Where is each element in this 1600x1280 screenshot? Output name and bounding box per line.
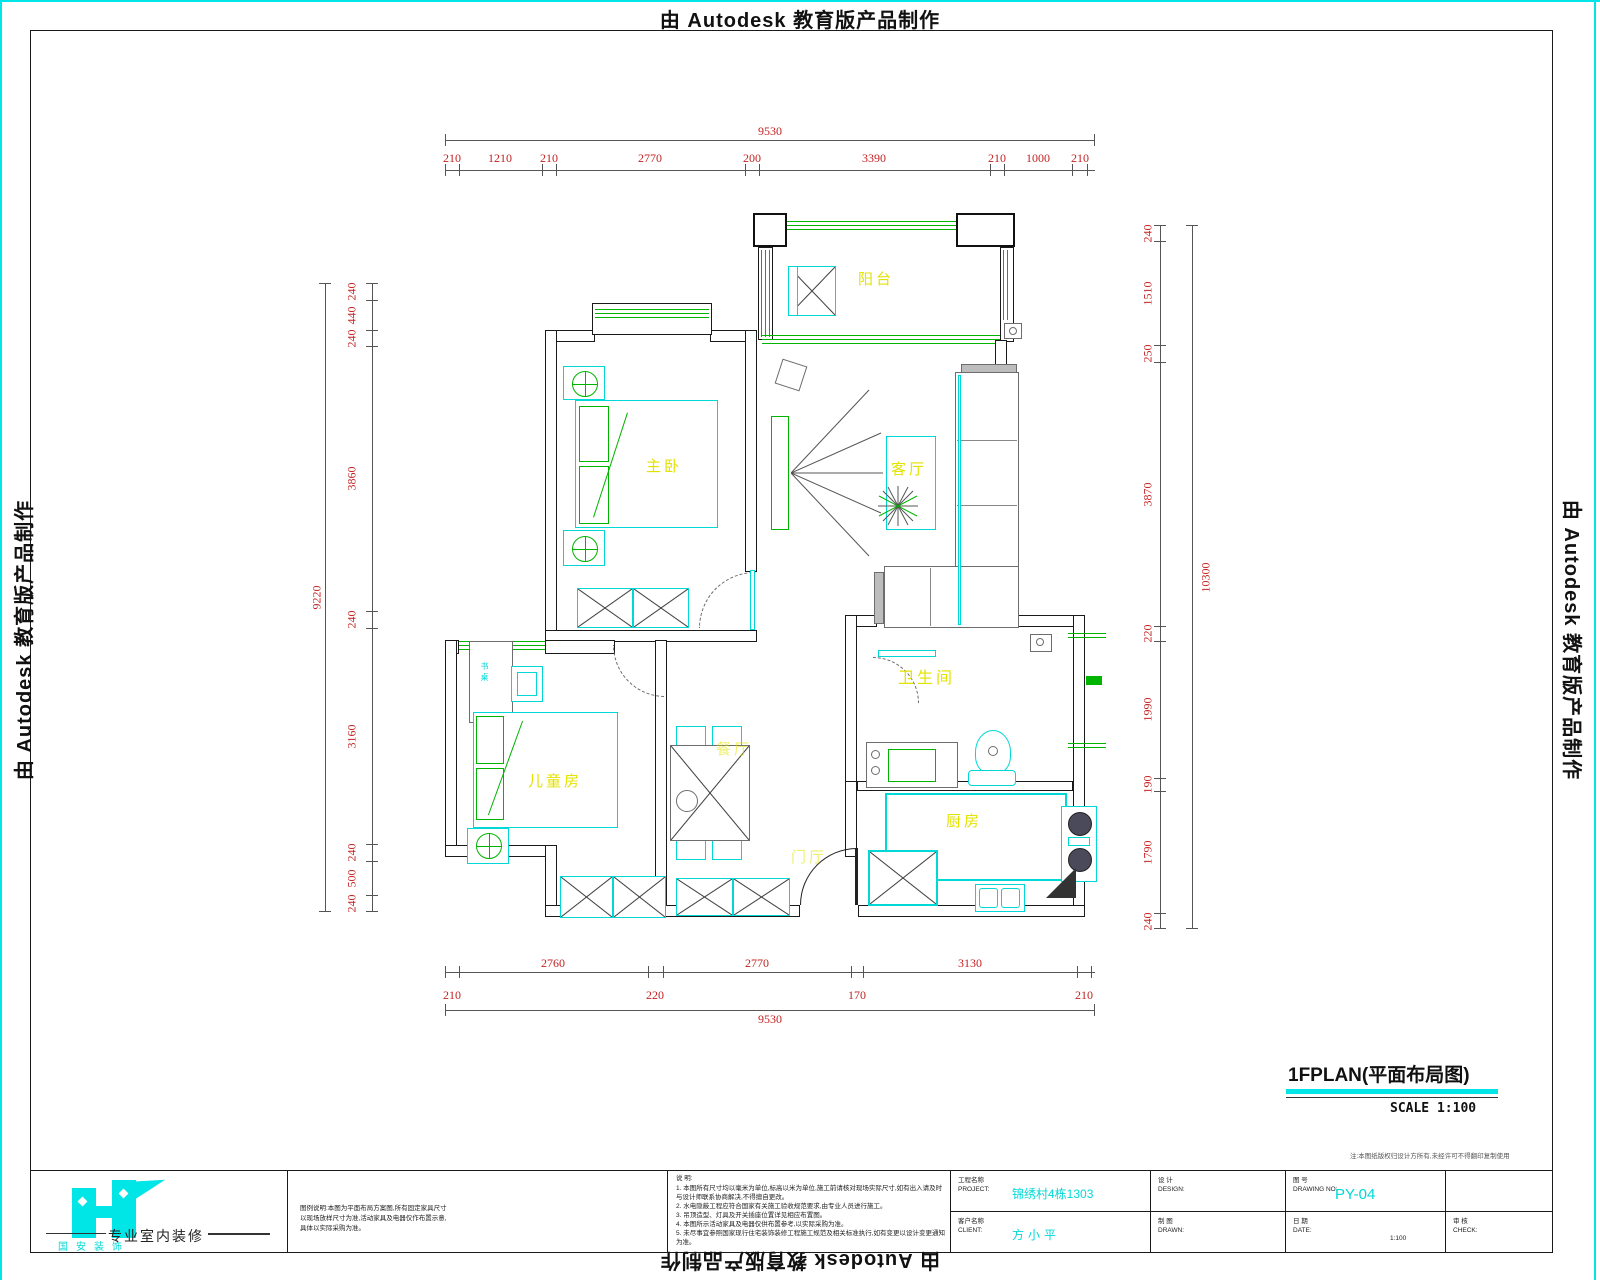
dim-value: 3390 <box>854 151 894 166</box>
legend-line: 具体以实际采购为准。 <box>300 1224 365 1233</box>
dim-value: 9220 <box>310 576 325 620</box>
date-value: 1:100 <box>1390 1234 1406 1243</box>
dim-tick <box>1154 913 1166 914</box>
dim-value: 210 <box>432 988 472 1003</box>
washing-machine-panel <box>788 266 798 316</box>
cyan-edge-top <box>0 0 1600 2</box>
dim-tick <box>1154 225 1166 226</box>
tv-cabinet <box>771 416 789 530</box>
room-label-balcony: 阳台 <box>858 268 894 289</box>
sofa-seam <box>957 440 1017 441</box>
cyan-edge-left <box>0 0 2 1280</box>
room-label-kitchen: 厨房 <box>946 810 982 831</box>
wall <box>845 615 857 790</box>
drawingno-value: PY-04 <box>1335 1186 1375 1203</box>
field-label: 日 期 <box>1293 1217 1308 1226</box>
field-label: 制 图 <box>1158 1217 1173 1226</box>
dim-tick <box>319 911 331 912</box>
toilet-tank <box>968 770 1016 786</box>
dim-value: 210 <box>1064 988 1104 1003</box>
dim-tick <box>1154 626 1166 627</box>
sofa-horizontal <box>884 566 1019 628</box>
logo-rule <box>46 1233 106 1234</box>
door-leaf-master <box>750 570 755 630</box>
sofa-seam <box>957 505 1017 506</box>
dim-value: 3870 <box>1141 475 1156 515</box>
dim-value: 2760 <box>533 956 573 971</box>
dim-tick <box>366 844 378 845</box>
dim-tick <box>1094 1004 1095 1016</box>
dim-tick <box>1186 928 1198 929</box>
field-label: DESIGN: <box>1158 1185 1185 1194</box>
frame-right <box>1552 30 1553 1253</box>
titleblock-row-line <box>950 1211 1552 1212</box>
field-label: 审 核 <box>1453 1217 1468 1226</box>
dim-value: 1510 <box>1141 274 1156 314</box>
watermark-bottom: 由 Autodesk 教育版产品制作 <box>660 1248 940 1277</box>
dim-value: 220 <box>1141 614 1156 654</box>
window <box>1068 743 1106 751</box>
sink-bowl <box>979 888 998 908</box>
plan-title: 1FPLAN(平面布局图) <box>1288 1060 1470 1087</box>
knob <box>871 766 880 775</box>
column <box>956 213 1015 247</box>
dim-value: 240 <box>345 884 360 924</box>
logo-crossbar <box>90 1206 118 1218</box>
tv-fan-lines <box>791 388 886 563</box>
burner-icon <box>1068 812 1092 836</box>
cyan-edge-right <box>1594 0 1596 1280</box>
titleblock-divider <box>1445 1170 1446 1253</box>
notes-line: 4. 本图所示活动家具及电器仅供布置参考,以实际采购为准。 <box>676 1220 848 1229</box>
door-arc-master <box>699 572 755 628</box>
wardrobe <box>577 588 633 628</box>
dim-tick <box>1077 966 1078 978</box>
copyright-note: 注:本图纸版权归设计方所有,未经许可不得翻印复制使用 <box>1350 1152 1510 1161</box>
window <box>1003 250 1011 320</box>
dim-tick <box>1154 641 1166 642</box>
dim-line <box>372 283 373 912</box>
drawing-sheet: 由 Autodesk 教育版产品制作 由 Autodesk 教育版产品制作 由 … <box>0 0 1600 1280</box>
plate-icon <box>676 790 698 812</box>
project-value: 锦绣村4栋1303 <box>1012 1185 1093 1202</box>
dim-value: 1790 <box>1141 833 1156 873</box>
wall <box>858 905 1085 917</box>
lamp-icon <box>476 833 502 859</box>
dim-line <box>445 1010 1095 1011</box>
dim-tick <box>366 861 378 862</box>
dim-value: 2770 <box>737 956 777 971</box>
sofa-armrest <box>874 572 884 624</box>
wardrobe <box>633 588 689 628</box>
dim-value: 3860 <box>345 459 360 499</box>
dim-line <box>325 283 326 912</box>
dim-tick <box>366 628 378 629</box>
shoe-cabinet <box>733 878 790 916</box>
client-value: 方小平 <box>1012 1226 1060 1243</box>
logo-tagline: 专业室内装修 <box>108 1226 204 1246</box>
dim-value: 210 <box>1060 151 1100 166</box>
dim-value: 190 <box>1141 765 1156 805</box>
room-label-living: 客厅 <box>891 458 927 479</box>
bath-shelf <box>878 650 936 657</box>
field-label: 图 号 <box>1293 1176 1308 1185</box>
window <box>761 250 770 337</box>
dim-value: 240 <box>1141 902 1156 942</box>
desk <box>469 641 513 723</box>
dim-tick <box>1154 791 1166 792</box>
notes-line: 为准。 <box>676 1238 696 1247</box>
dim-value: 220 <box>635 988 675 1003</box>
dim-line <box>445 972 1095 973</box>
dim-tick <box>1154 928 1166 929</box>
sliding-door <box>762 335 1000 346</box>
dim-value: 240 <box>345 600 360 640</box>
desk-chair-inner <box>517 672 537 696</box>
dim-value: 3130 <box>950 956 990 971</box>
dim-value: 1990 <box>1141 690 1156 730</box>
notes-line: 3. 吊顶造型、灯具及开关插座位置详见相应布置图。 <box>676 1211 826 1220</box>
lamp-icon <box>572 371 598 397</box>
field-label: 工程名称 <box>958 1176 984 1185</box>
plant-icon <box>876 484 920 533</box>
field-label: DRAWING NO: <box>1293 1185 1338 1194</box>
title-underline-black <box>1286 1097 1498 1098</box>
stove-panel <box>1068 837 1090 846</box>
door-arc-kids <box>613 645 665 697</box>
dim-value: 210 <box>529 151 569 166</box>
dim-line <box>1160 225 1161 929</box>
dim-value: 1000 <box>1018 151 1058 166</box>
wall <box>745 330 757 572</box>
room-label-dining: 餐厅 <box>716 738 752 759</box>
dim-tick <box>366 346 378 347</box>
chair <box>676 840 706 860</box>
watermark-top: 由 Autodesk 教育版产品制作 <box>660 4 940 33</box>
dim-tick <box>319 283 331 284</box>
dim-tick <box>366 611 378 612</box>
fridge <box>868 850 938 906</box>
wall <box>445 640 457 857</box>
dim-value: 1210 <box>480 151 520 166</box>
pillow <box>476 716 504 764</box>
sofa-seam <box>930 568 931 626</box>
titleblock-divider <box>1150 1170 1151 1253</box>
wall <box>545 330 557 642</box>
dim-tick <box>366 283 378 284</box>
dim-value: 3160 <box>345 717 360 757</box>
notes-line: 1. 本图所有尺寸均以毫米为单位,标高以米为单位,施工前请核对现场实际尺寸,如有… <box>676 1184 942 1193</box>
dim-tick <box>1094 134 1095 146</box>
lamp-icon <box>572 536 598 562</box>
notes-line: 5. 未尽事宜参照国家现行住宅装饰装修工程施工规范及相关标准执行,如有变更以设计… <box>676 1229 945 1238</box>
column <box>753 213 787 247</box>
dim-tick <box>445 1004 446 1016</box>
titleblock-divider <box>287 1170 288 1253</box>
pillow <box>476 768 504 820</box>
legend-line: 以现场放样尺寸为准,活动家具及电器仅作布置示意, <box>300 1214 447 1223</box>
corner-shelf <box>1046 868 1076 898</box>
dim-tick <box>1091 966 1092 978</box>
wardrobe <box>613 876 666 918</box>
dim-tick <box>445 134 446 146</box>
entry-door-leaf <box>855 848 858 905</box>
field-label: DRAWN: <box>1158 1226 1184 1235</box>
field-label: CHECK: <box>1453 1226 1478 1235</box>
logo-arrow <box>130 1171 168 1199</box>
window <box>787 221 956 232</box>
field-label: DATE: <box>1293 1226 1312 1235</box>
wall <box>845 781 857 857</box>
legend-line: 图例说明:本图为平面布局方案图,所有固定家具尺寸 <box>300 1204 447 1213</box>
dim-tick <box>863 966 864 978</box>
dim-tick <box>663 966 664 978</box>
dim-value: 9530 <box>745 124 795 139</box>
notes-heading: 说 明: <box>676 1174 693 1183</box>
chair <box>676 726 706 746</box>
dim-value: 240 <box>1141 214 1156 254</box>
dim-tick <box>459 966 460 978</box>
dim-tick <box>1186 225 1198 226</box>
shoe-cabinet <box>676 878 733 916</box>
dim-tick <box>1154 778 1166 779</box>
dim-value: 200 <box>732 151 772 166</box>
dim-tick <box>445 966 446 978</box>
dim-tick <box>1154 345 1166 346</box>
dim-value: 170 <box>837 988 877 1003</box>
titleblock-top-line <box>30 1170 1552 1171</box>
sofa-cyan-trim <box>958 375 961 625</box>
drain-circle <box>1009 327 1017 335</box>
desk-label: 书桌 <box>479 662 490 684</box>
dim-value: 210 <box>432 151 472 166</box>
pillow <box>579 406 609 462</box>
dim-tick <box>648 966 649 978</box>
dim-tick <box>366 911 378 912</box>
stool <box>775 359 808 392</box>
toilet-flush <box>988 746 998 756</box>
titleblock-divider <box>667 1170 668 1253</box>
scale-label: SCALE 1:100 <box>1390 1101 1476 1116</box>
field-label: 客户名称 <box>958 1217 984 1226</box>
dim-tick <box>366 330 378 331</box>
dim-line <box>445 140 1095 141</box>
room-label-master: 主卧 <box>646 455 682 476</box>
dim-line <box>1192 225 1193 929</box>
window <box>1068 633 1106 639</box>
dim-tick <box>1154 362 1166 363</box>
window <box>595 309 709 320</box>
field-label: CLIENT: <box>958 1226 982 1235</box>
field-label: 设 计 <box>1158 1176 1173 1185</box>
wardrobe <box>560 876 613 918</box>
watermark-right: 由 Autodesk 教育版产品制作 <box>1559 500 1588 780</box>
dim-value: 250 <box>1141 334 1156 374</box>
wall <box>545 640 615 654</box>
notes-line: 2. 水电隐蔽工程应符合国家有关施工验收规范要求,由专业人员进行施工。 <box>676 1202 887 1211</box>
dim-value: 210 <box>977 151 1017 166</box>
dim-value: 240 <box>345 319 360 359</box>
dim-value: 2770 <box>630 151 670 166</box>
dim-tick <box>1154 241 1166 242</box>
knob <box>871 750 880 759</box>
notes-line: 与设计师联系协商解决,不得擅自更改。 <box>676 1193 788 1202</box>
vanity-basin <box>888 749 936 782</box>
dim-tick <box>851 966 852 978</box>
watermark-left: 由 Autodesk 教育版产品制作 <box>8 500 37 780</box>
logo-rule <box>208 1233 270 1235</box>
dim-tick <box>366 300 378 301</box>
valve-icon <box>1086 676 1102 685</box>
dim-tick <box>366 895 378 896</box>
field-label: PROJECT: <box>958 1185 989 1194</box>
room-label-kids: 儿童房 <box>528 770 582 791</box>
title-underline-cyan <box>1286 1089 1498 1094</box>
sink-bowl <box>1001 888 1020 908</box>
chair <box>712 840 742 860</box>
dim-value: 9530 <box>745 1012 795 1027</box>
dim-value: 10300 <box>1199 554 1214 602</box>
drain-circle <box>1036 638 1044 646</box>
room-label-foyer: 门厅 <box>791 846 827 867</box>
room-label-bath: 卫生间 <box>898 664 955 688</box>
